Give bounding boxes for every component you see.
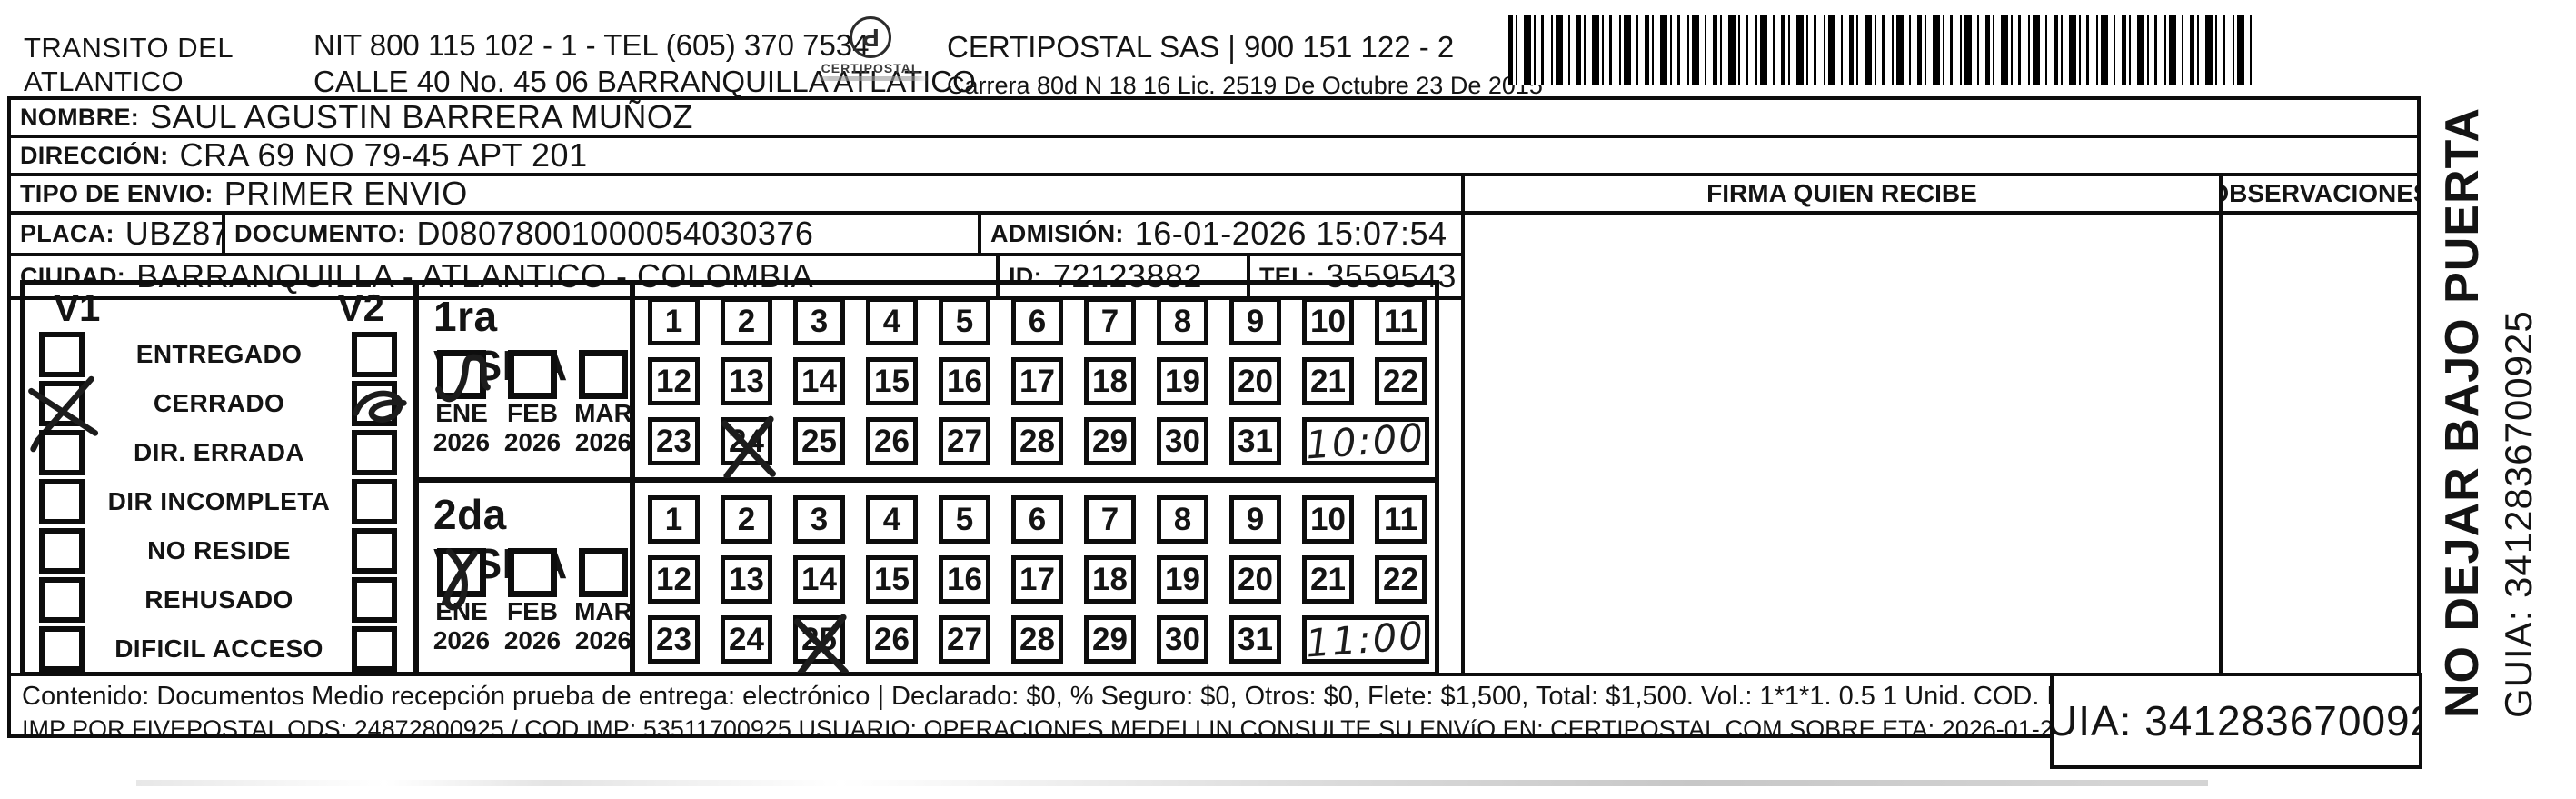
status-row-cerrado: CERRADO (39, 381, 399, 426)
day-number: 21 (1310, 364, 1346, 400)
status-label: CERRADO (86, 389, 352, 418)
day-box-30: 30 (1157, 417, 1208, 465)
day-number: 2 (738, 502, 755, 538)
side-guia-number: GUIA: 3412836700925 (2497, 82, 2541, 718)
day-number: 6 (1029, 502, 1046, 538)
v1-checkbox (39, 626, 85, 672)
status-row-dir-errada: DIR. ERRADA (39, 430, 399, 475)
day-number: 7 (1101, 502, 1119, 538)
day-number: 10 (1310, 502, 1346, 538)
month-checkbox (508, 548, 557, 597)
day-number: 31 (1238, 622, 1273, 658)
visit2-day-grid: 1234567891011121314151617181920212223242… (631, 478, 1439, 676)
day-box-9: 9 (1229, 495, 1281, 544)
nombre-label: NOMBRE: (20, 104, 139, 132)
day-number: 28 (1019, 622, 1055, 658)
day-number: 30 (1165, 424, 1200, 460)
company-name-nit: CERTIPOSTAL SAS | 900 151 122 - 2 (947, 30, 1543, 65)
day-number: 26 (874, 424, 910, 460)
day-number: 14 (801, 562, 837, 598)
day-number: 24 (729, 622, 764, 658)
month-checkbox (579, 548, 628, 597)
day-box-23: 23 (648, 615, 700, 664)
day-box-23: 23 (648, 417, 700, 465)
day-box-29: 29 (1084, 417, 1136, 465)
month-year-label: 2026 (430, 428, 493, 457)
day-box-17: 17 (1011, 357, 1063, 405)
month-label: MAR (572, 399, 635, 428)
sender-name-line2: ATLANTICO (24, 65, 234, 98)
logo-tagline (811, 76, 930, 81)
v2-checkbox (352, 528, 397, 574)
logo-circle-icon: P (850, 16, 891, 58)
day-box-24: 24 (721, 417, 772, 465)
day-box-25: 25 (793, 615, 845, 664)
day-number: 29 (1092, 622, 1128, 658)
nombre-value: SAUL AGUSTIN BARRERA MUÑOZ (150, 98, 693, 136)
delivery-form-scan: TRANSITO DEL ATLANTICO NIT 800 115 102 -… (0, 0, 2576, 799)
day-box-29: 29 (1084, 615, 1136, 664)
guia-box: GUIA: 3412836700925 (2050, 673, 2422, 769)
day-number: 18 (1092, 562, 1128, 598)
row-direccion: DIRECCIÓN: CRA 69 NO 79-45 APT 201 (7, 135, 2421, 176)
day-box-8: 8 (1157, 495, 1208, 544)
day-box-5: 5 (939, 495, 990, 544)
status-row-dificil-acceso: DIFICIL ACCESO (39, 626, 399, 672)
day-box-2: 2 (721, 297, 772, 345)
day-box-7: 7 (1084, 297, 1136, 345)
day-box-20: 20 (1229, 357, 1281, 405)
scan-smudge (136, 780, 2208, 786)
day-number: 20 (1238, 562, 1273, 598)
certipostal-logo: P CERTIPOSTAL (811, 16, 930, 81)
sender-name: TRANSITO DEL ATLANTICO (24, 31, 234, 98)
day-number: 1 (665, 502, 682, 538)
handwritten-mark-x (716, 413, 781, 478)
v2-checkbox (352, 332, 397, 377)
v1-header: V1 (54, 286, 100, 330)
footer-fine-print: IMP POR FIVEPOSTAL ODS: 24872800925 / CO… (22, 715, 2054, 734)
month-year-label: 2026 (501, 626, 564, 655)
delivery-status-box: V1 V2 ENTREGADOCERRADODIR. ERRADADIR INC… (20, 280, 418, 676)
day-number: 16 (947, 562, 982, 598)
day-box-14: 14 (793, 555, 845, 604)
day-number: 26 (874, 622, 910, 658)
documento-label: DOCUMENTO: (234, 220, 406, 248)
day-box-9: 9 (1229, 297, 1281, 345)
day-box-12: 12 (648, 357, 700, 405)
month-year-label: 2026 (572, 626, 635, 655)
month-slot-mar: MAR2026 (572, 548, 635, 655)
day-box-16: 16 (939, 357, 990, 405)
day-box-11: 11 (1375, 495, 1427, 544)
day-number: 10 (1310, 304, 1346, 340)
handwritten-mark-check-loop (434, 349, 498, 413)
observaciones-area (2219, 211, 2421, 677)
day-box-26: 26 (866, 417, 918, 465)
observaciones-column-header: OBSERVACIONES (2219, 173, 2421, 215)
v1-checkbox (39, 577, 85, 623)
day-number: 14 (801, 364, 837, 400)
status-label: REHUSADO (86, 585, 352, 614)
day-number: 8 (1174, 304, 1191, 340)
day-box-1: 1 (648, 495, 700, 544)
day-number: 15 (874, 562, 910, 598)
tipo-envio-label: TIPO DE ENVIO: (20, 180, 214, 208)
day-number: 11 (1384, 304, 1417, 340)
day-number: 20 (1238, 364, 1273, 400)
day-box-12: 12 (648, 555, 700, 604)
month-label: MAR (572, 597, 635, 626)
status-row-entregado: ENTREGADO (39, 332, 399, 377)
month-year-label: 2026 (572, 428, 635, 457)
day-number: 7 (1101, 304, 1119, 340)
v2-checkbox (352, 381, 397, 426)
day-box-10: 10 (1302, 297, 1354, 345)
day-box-17: 17 (1011, 555, 1063, 604)
month-slot-mar: MAR2026 (572, 350, 635, 457)
handwritten-mark-x-loop (434, 547, 498, 611)
day-number: 22 (1383, 562, 1418, 598)
month-slot-ene: ENE2026 (430, 350, 493, 457)
day-box-16: 16 (939, 555, 990, 604)
day-number: 9 (1247, 304, 1264, 340)
day-box-3: 3 (793, 495, 845, 544)
status-row-no-reside: NO RESIDE (39, 528, 399, 574)
day-number: 25 (801, 424, 837, 460)
cell-admision: ADMISIÓN: 16-01-2026 15:07:54 (978, 211, 1465, 256)
barcode (1508, 15, 2253, 85)
direccion-label: DIRECCIÓN: (20, 142, 169, 170)
v1-checkbox (39, 528, 85, 574)
visit-time-box: 11:00 (1302, 615, 1429, 664)
cell-documento: DOCUMENTO: D08078001000054030376 (222, 211, 981, 256)
day-number: 27 (947, 424, 982, 460)
day-box-31: 31 (1229, 417, 1281, 465)
month-slot-feb: FEB2026 (501, 350, 564, 457)
day-number: 21 (1310, 562, 1346, 598)
status-label: DIR INCOMPLETA (86, 487, 352, 516)
day-box-13: 13 (721, 555, 772, 604)
day-number: 15 (874, 364, 910, 400)
v2-checkbox (352, 479, 397, 524)
logo-wordmark: CERTIPOSTAL (811, 61, 930, 75)
v2-checkbox (352, 626, 397, 672)
v2-checkbox (352, 577, 397, 623)
day-box-22: 22 (1375, 555, 1427, 604)
day-box-22: 22 (1375, 357, 1427, 405)
day-number: 9 (1247, 502, 1264, 538)
day-number: 17 (1019, 562, 1055, 598)
admision-label: ADMISIÓN: (990, 220, 1124, 248)
day-number: 23 (656, 622, 691, 658)
day-box-21: 21 (1302, 357, 1354, 405)
day-box-20: 20 (1229, 555, 1281, 604)
day-number: 4 (883, 304, 900, 340)
day-number: 30 (1165, 622, 1200, 658)
placa-value: UBZ871 (125, 215, 225, 253)
status-label: NO RESIDE (86, 536, 352, 565)
day-box-5: 5 (939, 297, 990, 345)
visit2-box: 2da VISITA ENE2026FEB2026MAR2026 (414, 478, 634, 676)
status-label: ENTREGADO (86, 340, 352, 369)
day-number: 31 (1238, 424, 1273, 460)
v1-checkbox (39, 381, 85, 426)
month-label: FEB (501, 399, 564, 428)
company-info: CERTIPOSTAL SAS | 900 151 122 - 2 Carrer… (947, 30, 1543, 100)
day-box-28: 28 (1011, 615, 1063, 664)
day-box-19: 19 (1157, 555, 1208, 604)
day-box-31: 31 (1229, 615, 1281, 664)
no-dejar-warning: NO DEJAR BAJO PUERTA (2435, 82, 2490, 718)
day-box-1: 1 (648, 297, 700, 345)
day-box-18: 18 (1084, 357, 1136, 405)
month-checkbox (579, 350, 628, 399)
v1-checkbox (39, 430, 85, 475)
direccion-value: CRA 69 NO 79-45 APT 201 (180, 136, 588, 175)
handwritten-mark-x (789, 611, 854, 676)
day-number: 17 (1019, 364, 1055, 400)
month-slot-ene: ENE2026 (430, 548, 493, 655)
status-label: DIFICIL ACCESO (86, 634, 352, 664)
month-checkbox (437, 548, 486, 597)
day-box-21: 21 (1302, 555, 1354, 604)
v1-checkbox (39, 332, 85, 377)
day-number: 13 (729, 562, 764, 598)
day-box-19: 19 (1157, 357, 1208, 405)
day-number: 19 (1165, 364, 1200, 400)
day-box-13: 13 (721, 357, 772, 405)
day-number: 18 (1092, 364, 1128, 400)
v2-header: V2 (338, 286, 384, 330)
day-number: 12 (656, 562, 691, 598)
handwritten-time: 11:00 (1305, 613, 1427, 665)
day-box-7: 7 (1084, 495, 1136, 544)
day-number: 23 (656, 424, 691, 460)
firma-signature-area (1461, 211, 2223, 677)
day-box-6: 6 (1011, 495, 1063, 544)
firma-column-header: FIRMA QUIEN RECIBE (1461, 173, 2223, 215)
day-number: 1 (665, 304, 682, 340)
day-box-8: 8 (1157, 297, 1208, 345)
row-nombre: NOMBRE: SAUL AGUSTIN BARRERA MUÑOZ (7, 96, 2421, 138)
guia-number: GUIA: 3412836700925 (2050, 696, 2422, 745)
day-number: 3 (811, 502, 828, 538)
day-number: 12 (656, 364, 691, 400)
day-number: 2 (738, 304, 755, 340)
sender-name-line1: TRANSITO DEL (24, 31, 234, 65)
day-box-27: 27 (939, 417, 990, 465)
day-box-28: 28 (1011, 417, 1063, 465)
day-box-4: 4 (866, 297, 918, 345)
day-box-30: 30 (1157, 615, 1208, 664)
cell-placa: PLACA: UBZ871 (7, 211, 225, 256)
placa-label: PLACA: (20, 220, 114, 248)
day-number: 27 (947, 622, 982, 658)
day-number: 3 (811, 304, 828, 340)
month-year-label: 2026 (501, 428, 564, 457)
month-year-label: 2026 (430, 626, 493, 655)
day-box-11: 11 (1375, 297, 1427, 345)
day-box-2: 2 (721, 495, 772, 544)
status-label: DIR. ERRADA (86, 438, 352, 467)
v1-checkbox (39, 479, 85, 524)
day-box-25: 25 (793, 417, 845, 465)
day-number: 13 (729, 364, 764, 400)
day-box-15: 15 (866, 357, 918, 405)
admision-value: 16-01-2026 15:07:54 (1135, 215, 1447, 253)
day-number: 6 (1029, 304, 1046, 340)
vertical-side-note: NO DEJAR BAJO PUERTA GUIA: 3412836700925 (2435, 82, 2562, 718)
documento-value: D08078001000054030376 (417, 215, 814, 253)
footer-cell: Contenido: Documentos Medio recepción pr… (7, 673, 2054, 738)
day-box-24: 24 (721, 615, 772, 664)
visit1-box: 1ra VISITA ENE2026FEB2026MAR2026 (414, 280, 634, 482)
day-number: 11 (1384, 502, 1417, 538)
day-number: 28 (1019, 424, 1055, 460)
visit1-day-grid: 1234567891011121314151617181920212223242… (631, 280, 1439, 482)
day-box-6: 6 (1011, 297, 1063, 345)
day-box-15: 15 (866, 555, 918, 604)
day-number: 16 (947, 364, 982, 400)
day-box-27: 27 (939, 615, 990, 664)
v2-checkbox (352, 430, 397, 475)
month-label: FEB (501, 597, 564, 626)
row-tipo-envio: TIPO DE ENVIO: PRIMER ENVIO (7, 173, 1465, 215)
day-number: 8 (1174, 502, 1191, 538)
month-checkbox (437, 350, 486, 399)
status-row-rehusado: REHUSADO (39, 577, 399, 623)
month-slot-feb: FEB2026 (501, 548, 564, 655)
tipo-envio-value: PRIMER ENVIO (224, 175, 468, 213)
day-box-18: 18 (1084, 555, 1136, 604)
footer-content-line: Contenido: Documentos Medio recepción pr… (22, 682, 2054, 712)
visit-time-box: 10:00 (1302, 417, 1429, 465)
day-number: 5 (956, 304, 973, 340)
day-number: 22 (1383, 364, 1418, 400)
month-checkbox (508, 350, 557, 399)
day-number: 29 (1092, 424, 1128, 460)
day-box-10: 10 (1302, 495, 1354, 544)
day-box-14: 14 (793, 357, 845, 405)
day-number: 5 (956, 502, 973, 538)
day-box-26: 26 (866, 615, 918, 664)
day-box-3: 3 (793, 297, 845, 345)
day-number: 4 (883, 502, 900, 538)
status-row-dir-incompleta: DIR INCOMPLETA (39, 479, 399, 524)
day-number: 19 (1165, 562, 1200, 598)
day-box-4: 4 (866, 495, 918, 544)
handwritten-time: 10:00 (1305, 414, 1427, 467)
